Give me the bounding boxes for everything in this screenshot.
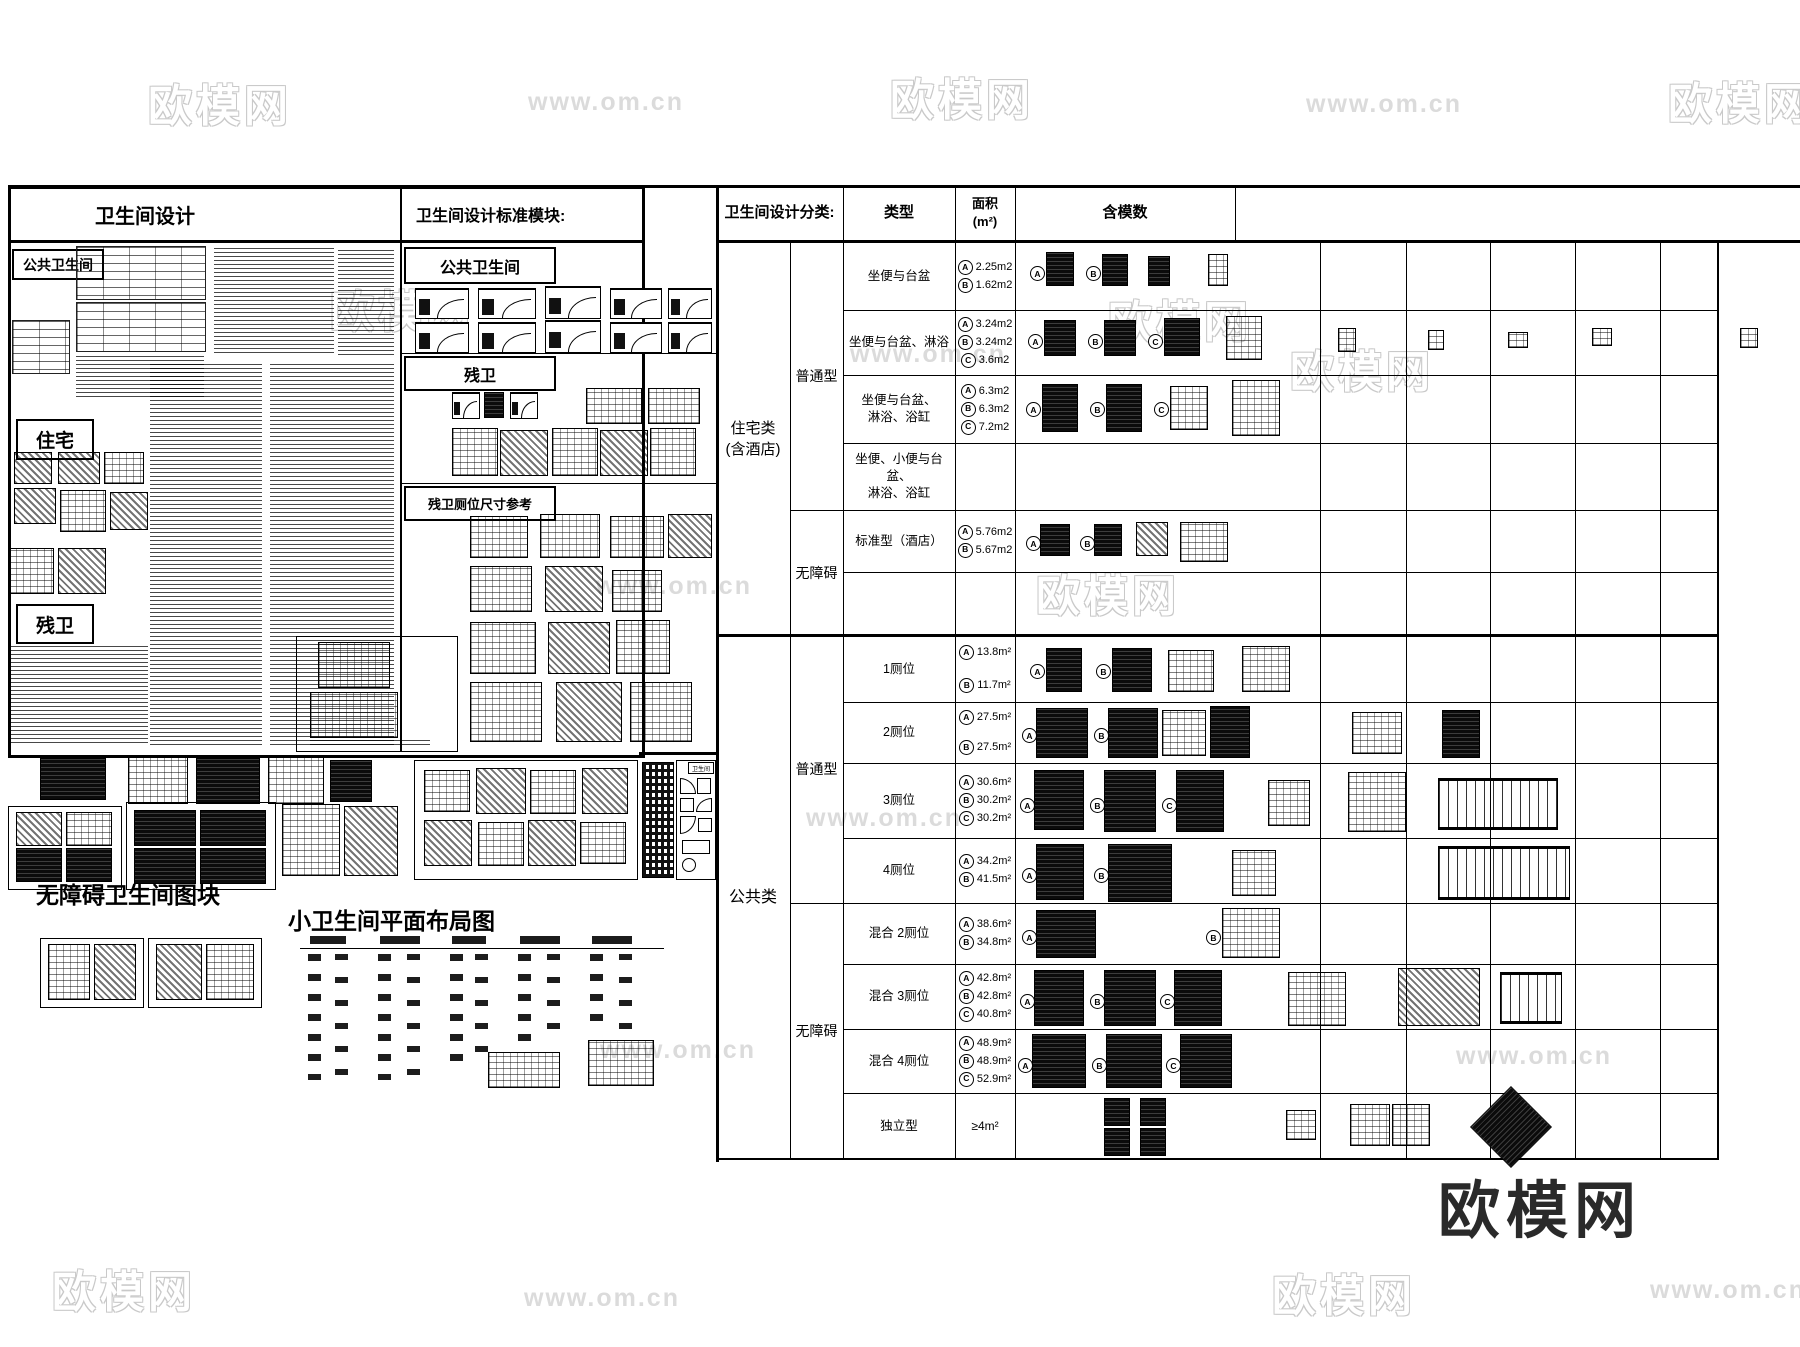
row-type-label: 标准型（酒店） <box>843 510 955 572</box>
floor-plan-thumbnail <box>1136 522 1168 556</box>
area-marker: B <box>959 793 974 808</box>
area-marker: A <box>959 854 974 869</box>
title-band-divider <box>8 240 642 243</box>
area-cell: A13.8m² B11.7m² <box>955 636 1015 702</box>
floor-plan-thumbnail <box>1108 708 1158 758</box>
floor-plan-thumbnail <box>528 820 576 866</box>
watermark-brand: 欧模网 <box>1272 1260 1416 1324</box>
module-marker: A <box>1022 930 1037 945</box>
symbols-block <box>642 762 674 878</box>
floor-plan-thumbnail <box>1392 1104 1430 1146</box>
floor-plan-thumbnail <box>1232 380 1280 436</box>
module-marker: A <box>1028 334 1043 349</box>
floor-plan-thumbnail <box>344 806 398 876</box>
floor-plan-thumbnail <box>1268 780 1310 826</box>
group-public: 公共类 <box>716 636 790 1300</box>
floor-plan-thumbnail <box>478 822 524 866</box>
floor-plan-thumbnail <box>1288 972 1346 1026</box>
area-value: 48.9m² <box>977 1054 1011 1069</box>
wc-module-glyph <box>668 288 712 319</box>
module-marker: C <box>1166 1058 1181 1073</box>
section-label-accessible: 残卫 <box>16 604 94 644</box>
floor-plan-thumbnail <box>600 430 648 476</box>
floor-plan-thumbnail <box>1176 770 1224 832</box>
floor-plan-thumbnail <box>1398 968 1480 1026</box>
row-type-label: 1厕位 <box>843 636 955 702</box>
fixture-column-header <box>380 936 420 944</box>
floor-plan-thumbnail <box>330 760 372 802</box>
floor-plan-thumbnail <box>1500 972 1562 1024</box>
area-marker: A <box>959 971 974 986</box>
area-marker: A <box>959 1036 974 1051</box>
column-header-area: 面积 (m²) <box>955 186 1015 240</box>
floor-plan-thumbnail <box>1036 708 1088 758</box>
legend-symbol <box>697 778 711 794</box>
figure-caption-lines <box>310 740 430 746</box>
floor-plan-thumbnail <box>1592 328 1612 346</box>
module-marker: B <box>1090 994 1105 1009</box>
wc-module-glyph <box>478 322 536 353</box>
floor-plan-thumbnail <box>200 810 266 846</box>
module-marker: C <box>1154 402 1169 417</box>
floor-plan-thumbnail <box>1174 970 1222 1026</box>
sheet-bottom-extension <box>639 752 719 755</box>
row-type-label: 3厕位 <box>843 763 955 838</box>
floor-plan-thumbnail <box>282 804 340 876</box>
floor-plan-thumbnail <box>1168 650 1214 692</box>
area-marker: B <box>959 872 974 887</box>
floor-plan-thumbnail <box>310 692 398 738</box>
floor-plan-thumbnail <box>156 944 202 1000</box>
floor-plan-thumbnail <box>1104 770 1156 832</box>
floor-plan-thumbnail <box>48 944 90 1000</box>
floor-plan-thumbnail <box>470 566 532 612</box>
module-marker: A <box>1018 1058 1033 1073</box>
row-type-label: 坐便与台盆 <box>843 243 955 310</box>
floor-plan-thumbnail <box>1106 1034 1162 1088</box>
floor-plan-thumbnail <box>318 642 390 688</box>
floor-plan-thumbnail <box>488 1052 560 1088</box>
floor-plan-thumbnail <box>128 756 188 804</box>
sheet-title: 卫生间设计 <box>95 200 195 229</box>
fixture-column-header <box>452 936 486 944</box>
wc-module-glyph <box>415 322 469 353</box>
fixture-glyph-column <box>448 954 490 1064</box>
module-marker: C <box>1148 334 1163 349</box>
area-marker: A <box>958 317 973 332</box>
floor-plan-thumbnail <box>586 388 642 424</box>
site-logo: 欧模网 <box>1438 1160 1642 1250</box>
floor-plan-thumbnail <box>58 548 106 594</box>
floor-plan-thumbnail <box>1180 1034 1232 1088</box>
floor-plan-thumbnail <box>1104 970 1156 1026</box>
fixture-glyph-column <box>516 954 562 1042</box>
module-marker: B <box>1094 728 1109 743</box>
wc-module-glyph <box>415 288 469 319</box>
area-marker: A <box>959 710 974 725</box>
floor-plan-thumbnail <box>1044 320 1076 356</box>
area-value: 27.5m² <box>977 740 1011 755</box>
module-marker: A <box>1020 798 1035 813</box>
area-value: 48.9m² <box>977 1036 1011 1051</box>
fixture-column-header <box>592 936 632 944</box>
floor-plan-thumbnail <box>424 820 472 866</box>
watermark-brand: 欧模网 <box>52 1256 196 1320</box>
floor-plan-thumbnail <box>556 682 622 742</box>
module-marker: B <box>1094 868 1109 883</box>
floor-plan-thumbnail <box>552 428 598 476</box>
floor-plan-thumbnail <box>500 430 548 476</box>
area-marker: B <box>958 278 973 293</box>
floor-plan-thumbnail <box>1108 844 1172 902</box>
subgroup-accessible: 无障碍 <box>790 510 843 636</box>
band-divider <box>400 353 716 354</box>
area-marker: A <box>958 525 973 540</box>
watermark-brand: 欧模网 <box>890 64 1034 128</box>
row-line <box>843 443 1717 444</box>
area-value: 5.67m2 <box>976 543 1013 558</box>
cad-sheet: 欧模网 欧模网 欧模网 欧模网 欧模网 欧模网 欧模网 欧模网 欧模网 www.… <box>0 0 1800 1347</box>
module-marker: B <box>1088 334 1103 349</box>
column-header-modules: 含模数 <box>1015 186 1235 240</box>
area-marker: B <box>959 678 974 693</box>
subgroup-normal: 普通型 <box>790 243 843 510</box>
dense-text-block <box>214 248 334 356</box>
floor-plan-thumbnail <box>470 622 536 674</box>
row-type-label: 混合 3厕位 <box>843 964 955 1029</box>
module-marker: A <box>1030 266 1045 281</box>
fixture-glyph-column <box>588 954 634 1034</box>
floor-plan-thumbnail <box>16 812 62 846</box>
floor-plan-thumbnail <box>548 622 610 674</box>
watermark-brand: 欧模网 <box>148 70 292 134</box>
floor-plan-thumbnail <box>8 548 54 594</box>
column-header-type: 类型 <box>843 186 955 240</box>
area-marker: B <box>959 1054 974 1069</box>
row-type-label: 坐便与台盆、淋浴 <box>843 310 955 375</box>
area-value: ≥4m² <box>971 1118 998 1134</box>
module-marker: A <box>1022 868 1037 883</box>
area-cell: A42.8m² B42.8m² C40.8m² <box>955 964 1015 1029</box>
area-marker: B <box>959 935 974 950</box>
floor-plan-thumbnail <box>452 428 498 476</box>
area-value: 11.7m² <box>977 678 1010 693</box>
floor-plan-thumbnail <box>134 810 196 846</box>
floor-plan-thumbnail <box>470 516 528 558</box>
area-value: 30.6m² <box>977 775 1011 790</box>
band-divider <box>400 483 716 484</box>
floor-plan-thumbnail <box>1106 384 1142 432</box>
mini-table <box>76 302 206 352</box>
row-type-label: 坐便、小便与台盆、 淋浴、浴缸 <box>843 443 955 510</box>
dense-text-block <box>338 250 394 356</box>
legend-symbol <box>698 818 712 832</box>
module-marker: B <box>1092 1058 1107 1073</box>
floor-plan-thumbnail <box>94 944 136 1000</box>
module-marker: B <box>1080 536 1095 551</box>
floor-plan-thumbnail <box>1242 646 1290 692</box>
module-marker: A <box>1026 536 1041 551</box>
floor-plan-thumbnail <box>610 516 664 558</box>
floor-plan-thumbnail <box>1438 846 1570 900</box>
module-marker: B <box>1086 266 1101 281</box>
area-cell: A5.76m2 B5.67m2 <box>955 510 1015 572</box>
row-type-label: 4厕位 <box>843 838 955 903</box>
floor-plan-thumbnail <box>1046 252 1074 286</box>
floor-plan-thumbnail <box>530 770 576 814</box>
floor-plan-thumbnail <box>1042 384 1078 432</box>
fixture-column-header <box>520 936 560 944</box>
floor-plan-thumbnail <box>650 428 696 476</box>
floor-plan-thumbnail <box>1170 386 1208 430</box>
floor-plan-thumbnail <box>648 388 700 424</box>
module-marker: B <box>1090 798 1105 813</box>
floor-plan-thumbnail <box>196 758 260 804</box>
module-marker: A <box>1030 664 1045 679</box>
wc-module-glyph <box>545 320 601 353</box>
area-value: 6.3m2 <box>979 384 1010 399</box>
floor-plan-thumbnail <box>1040 524 1070 556</box>
module-marker: B <box>1206 930 1221 945</box>
mini-table <box>12 320 70 374</box>
floor-plan-thumbnail <box>630 682 692 742</box>
floor-plan-thumbnail <box>1232 850 1276 896</box>
area-value: 13.8m² <box>977 645 1011 660</box>
area-marker: C <box>959 1072 974 1087</box>
wc-module-glyph <box>610 288 662 319</box>
floor-plan-thumbnail <box>1470 1086 1552 1168</box>
subgroup-accessible: 无障碍 <box>790 903 843 1160</box>
area-marker: C <box>961 353 976 368</box>
row-type-label: 混合 2厕位 <box>843 903 955 964</box>
table-title: 卫生间设计分类: <box>716 186 843 240</box>
fixture-table-rule <box>300 948 664 949</box>
area-value: 3.24m2 <box>976 335 1013 350</box>
floor-plan-thumbnail <box>1034 970 1084 1026</box>
area-value: 5.76m2 <box>976 525 1013 540</box>
area-value: 34.8m² <box>977 935 1011 950</box>
floor-plan-thumbnail <box>545 566 603 612</box>
watermark-brand: 欧模网 <box>1290 336 1434 400</box>
floor-plan-thumbnail <box>40 758 106 800</box>
floor-plan-thumbnail <box>588 1040 654 1086</box>
floor-plan-thumbnail <box>612 570 662 612</box>
area-value: 42.8m² <box>977 971 1011 986</box>
floor-plan-thumbnail <box>14 488 56 524</box>
floor-plan-thumbnail <box>1102 254 1128 286</box>
floor-plan-thumbnail <box>1508 332 1528 348</box>
floor-plan-thumbnail <box>1352 712 1402 754</box>
floor-plan-thumbnail <box>1162 710 1206 756</box>
floor-plan-thumbnail <box>424 770 470 812</box>
area-marker: C <box>959 1007 974 1022</box>
table-right-border <box>1717 243 1719 1160</box>
row-type-label: 混合 4厕位 <box>843 1029 955 1093</box>
area-value: 52.9m² <box>977 1072 1011 1087</box>
area-value: 42.8m² <box>977 989 1011 1004</box>
floor-plan-thumbnail <box>1112 648 1152 692</box>
fixture-column-header <box>310 936 346 944</box>
watermark-url: www.om.cn <box>1306 90 1462 119</box>
area-cell: A27.5m² B27.5m² <box>955 702 1015 763</box>
area-marker: C <box>959 811 974 826</box>
area-value: 38.6m² <box>977 917 1011 932</box>
wc-module-glyph <box>478 288 536 319</box>
area-cell: A3.24m2 B3.24m2 C3.6m2 <box>955 310 1015 375</box>
area-cell: A48.9m² B48.9m² C52.9m² <box>955 1029 1015 1093</box>
small-layout-caption: 小卫生间平面布局图 <box>288 902 495 936</box>
area-value: 40.8m² <box>977 1007 1011 1022</box>
floor-plan-thumbnail <box>1104 320 1136 356</box>
module-marker: B <box>1096 664 1111 679</box>
watermark-url: www.om.cn <box>524 1284 680 1313</box>
band-label-public: 公共卫生间 <box>404 247 556 284</box>
area-value: 6.3m2 <box>979 402 1010 417</box>
area-value: 30.2m² <box>977 793 1011 808</box>
floor-plan-thumbnail <box>580 822 626 864</box>
module-marker: A <box>1026 402 1041 417</box>
area-value: 3.24m2 <box>976 317 1013 332</box>
blocks-caption: 无障碍卫生间图块 <box>36 876 220 910</box>
row-line <box>843 572 1717 573</box>
subgroup-normal: 普通型 <box>790 636 843 903</box>
floor-plan-thumbnail <box>1104 1098 1130 1126</box>
floor-plan-thumbnail <box>1740 328 1758 348</box>
grid-line <box>1235 186 1236 240</box>
area-value: 1.62m2 <box>976 278 1013 293</box>
dense-text-block <box>10 646 148 746</box>
area-cell: A38.6m² B34.8m² <box>955 903 1015 964</box>
area-marker: A <box>959 645 974 660</box>
area-marker: A <box>958 260 973 275</box>
floor-plan-thumbnail <box>58 452 100 484</box>
floor-plan-thumbnail <box>616 620 670 674</box>
watermark-url: www.om.cn <box>528 88 684 117</box>
floor-plan-thumbnail <box>1428 330 1444 350</box>
floor-plan-thumbnail <box>1222 908 1280 958</box>
area-cell: A2.25m2 B1.62m2 <box>955 243 1015 310</box>
floor-plan-thumbnail <box>1140 1128 1166 1156</box>
floor-plan-thumbnail <box>484 392 504 418</box>
wc-module-glyph <box>610 322 662 353</box>
modules-panel-title: 卫生间设计标准模块: <box>416 202 565 226</box>
floor-plan-thumbnail <box>206 944 254 1000</box>
area-value: 27.5m² <box>977 710 1011 725</box>
floor-plan-thumbnail <box>60 490 106 532</box>
floor-plan-thumbnail <box>1350 1104 1390 1146</box>
wc-module-glyph <box>545 286 601 319</box>
area-cell: ≥4m² <box>955 1093 1015 1160</box>
floor-plan-thumbnail <box>1286 1110 1316 1140</box>
row-type-label: 2厕位 <box>843 702 955 763</box>
area-cell: A34.2m² B41.5m² <box>955 838 1015 903</box>
floor-plan-thumbnail <box>1034 770 1084 830</box>
area-marker: A <box>961 384 976 399</box>
area-marker: B <box>958 335 973 350</box>
floor-plan-thumbnail <box>1148 256 1170 286</box>
floor-plan-thumbnail <box>582 768 628 814</box>
wc-module-glyph <box>452 392 480 419</box>
legend-symbol <box>682 840 710 854</box>
floor-plan-thumbnail <box>1032 1034 1086 1088</box>
module-marker: A <box>1020 994 1035 1009</box>
group-residential: 住宅类 (含酒店) <box>716 243 790 636</box>
watermark-url: www.om.cn <box>1456 1042 1612 1071</box>
area-value: 2.25m2 <box>976 260 1013 275</box>
watermark-brand: 欧模网 <box>1036 560 1180 624</box>
fixture-glyph-column <box>376 954 422 1080</box>
floor-plan-thumbnail <box>1226 316 1262 360</box>
band-label-accessible: 残卫 <box>404 356 556 391</box>
floor-plan-thumbnail <box>668 514 712 558</box>
area-marker: A <box>959 917 974 932</box>
floor-plan-thumbnail <box>1348 772 1406 832</box>
wc-module-glyph <box>510 392 538 419</box>
floor-plan-thumbnail <box>1094 524 1122 556</box>
area-marker: B <box>959 989 974 1004</box>
module-marker: C <box>1160 994 1175 1009</box>
floor-plan-thumbnail <box>1180 522 1228 562</box>
floor-plan-thumbnail <box>1104 1128 1130 1156</box>
area-value: 34.2m² <box>977 854 1011 869</box>
area-marker: B <box>959 740 974 755</box>
module-marker: A <box>1022 728 1037 743</box>
module-marker: B <box>1090 402 1105 417</box>
area-marker: B <box>961 402 976 417</box>
floor-plan-thumbnail <box>1036 910 1096 958</box>
floor-plan-thumbnail <box>66 812 112 846</box>
floor-plan-thumbnail <box>1208 254 1228 286</box>
floor-plan-thumbnail <box>104 452 144 484</box>
area-value: 41.5m² <box>977 872 1011 887</box>
floor-plan-thumbnail <box>1210 706 1250 758</box>
floor-plan-thumbnail <box>1338 328 1356 352</box>
watermark-url: www.om.cn <box>1650 1276 1800 1305</box>
area-value: 30.2m² <box>977 811 1011 826</box>
area-value: 7.2m2 <box>979 420 1010 435</box>
dense-text-block <box>150 364 262 746</box>
fixture-glyph-column <box>306 954 350 1080</box>
floor-plan-thumbnail <box>14 452 52 484</box>
area-marker: B <box>958 543 973 558</box>
area-value: 3.6m2 <box>979 353 1010 368</box>
floor-plan-thumbnail <box>1164 318 1200 356</box>
legend-symbol <box>682 858 696 872</box>
floor-plan-thumbnail <box>1438 778 1558 830</box>
floor-plan-thumbnail <box>110 492 148 530</box>
row-type-label: 独立型 <box>843 1093 955 1160</box>
row-type-label: 坐便与台盆、 淋浴、浴缸 <box>843 375 955 443</box>
area-marker: C <box>961 420 976 435</box>
floor-plan-thumbnail <box>268 756 324 804</box>
wc-module-glyph <box>668 322 712 353</box>
area-cell: A30.6m² B30.2m² C30.2m² <box>955 763 1015 838</box>
module-marker: C <box>1162 798 1177 813</box>
legend-symbol <box>680 798 694 812</box>
legend-title: 卫生间 <box>688 762 714 774</box>
floor-plan-thumbnail <box>1442 710 1480 758</box>
area-cell: A6.3m2 B6.3m2 C7.2m2 <box>955 375 1015 443</box>
floor-plan-thumbnail <box>1036 844 1084 900</box>
watermark-brand: 欧模网 <box>1668 68 1800 132</box>
area-marker: A <box>959 775 974 790</box>
mini-table <box>76 246 206 300</box>
floor-plan-thumbnail <box>476 768 526 814</box>
floor-plan-thumbnail <box>540 514 600 558</box>
floor-plan-thumbnail <box>470 682 542 742</box>
floor-plan-thumbnail <box>1046 648 1082 692</box>
floor-plan-thumbnail <box>1140 1098 1166 1126</box>
